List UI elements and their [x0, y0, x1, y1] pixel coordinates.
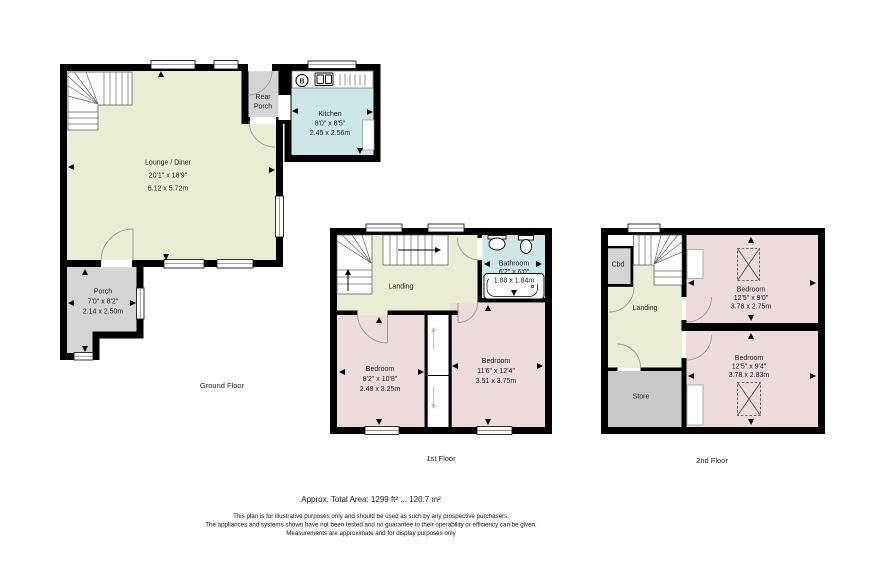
landing-label-2f: Landing: [633, 305, 658, 312]
kitchen-sink-icon: [315, 73, 333, 86]
second-floor-plan: Cbd Landing Store Bedroom 12'5" x 9'0" 3…: [605, 224, 822, 465]
floorplan-page: B: [0, 0, 886, 584]
first-floor-caption: 1st Floor: [426, 454, 456, 463]
bathroom-label: Bathroom: [499, 261, 530, 268]
bedroom-right-dims-imperial: 11'6" x 12'4": [477, 368, 515, 375]
floorplan-svg: B: [0, 0, 886, 584]
bathroom-doorway: [477, 238, 483, 260]
bedroom-front-dims-metric: 3.78 x 2.75m: [731, 304, 772, 311]
bedroom-right-label: Bedroom: [482, 358, 511, 365]
rear-porch-label-1: Rear: [255, 94, 271, 101]
ground-floor-plan: B: [64, 61, 378, 391]
porch-lounge-doorway: [101, 260, 132, 267]
bathroom-sink-icon: [488, 236, 506, 251]
bedroom-left-label: Bedroom: [366, 366, 395, 373]
lounge-dims-metric: 6.12 x 5.72m: [148, 186, 189, 193]
rearporch-lounge-doorway: [250, 117, 276, 124]
footer-text: Approx. Total Area: 1299 ft² ... 120.7 m…: [205, 495, 537, 537]
first-floor-straight-stairs: [383, 235, 448, 265]
kitchen-counter: B: [292, 71, 373, 88]
total-area-text: Approx. Total Area: 1299 ft² ... 120.7 m…: [301, 495, 441, 504]
rear-porch-label-2: Porch: [254, 104, 272, 111]
lounge-label: Lounge / Diner: [145, 160, 192, 167]
bedroom-rear-dims-imperial: 12'5" x 9'4": [732, 364, 767, 371]
rearporch-exterior-doorway: [248, 64, 272, 71]
bedroom-right-dims-metric: 3.51 x 3.75m: [476, 378, 517, 385]
rearporch-kitchen-doorway: [279, 95, 291, 120]
porch-label: Porch: [94, 289, 112, 296]
bedroom-rear-closet: [687, 385, 703, 425]
bedroom-left-dims-imperial: 8'2" x 10'8": [363, 376, 398, 383]
bedroom-left-dims-metric: 2.48 x 3.25m: [360, 386, 401, 393]
kitchen-dims-imperial: 8'0" x 8'5": [315, 121, 346, 128]
disclaimer-line-1: This plan is for illustrative purposes o…: [233, 513, 509, 520]
store-label: Store: [633, 394, 650, 401]
cupboard-top-recess: [608, 235, 633, 247]
bedroom-rear-label: Bedroom: [735, 355, 764, 362]
cupboard-label: Cbd: [612, 262, 625, 269]
boiler-label: B: [299, 78, 304, 85]
bedroom-front-dims-imperial: 12'5" x 9'0": [734, 295, 769, 302]
lounge-dims-imperial: 20'1" x 18'9": [149, 173, 188, 180]
kitchen-label: Kitchen: [318, 111, 341, 118]
first-floor-plan: Landing Bathroom 6'2" x 6'0" 1.88 x 1.84…: [334, 224, 549, 463]
bedroom-front-label: Bedroom: [737, 287, 766, 294]
kitchen-dims-metric: 2.45 x 2.56m: [310, 130, 351, 137]
bedroom-front-closet: [687, 250, 703, 279]
porch-dims-metric: 2.14 x 2.50m: [83, 309, 124, 316]
disclaimer-line-3: Measurements are approximate and for dis…: [286, 530, 456, 537]
landing-label-1f: Landing: [389, 284, 414, 291]
porch-dims-imperial: 7'0" x 8'2": [88, 299, 119, 306]
second-floor-caption: 2nd Floor: [696, 456, 728, 465]
bathroom-dims-metric: 1.88 x 1.84m: [494, 278, 535, 285]
kitchen-unit: [363, 120, 375, 150]
disclaimer-line-2: The appliances and systems shown have no…: [205, 522, 537, 529]
bathroom-dims-imperial: 6'2" x 6'0": [499, 269, 530, 276]
bedroom-rear-dims-metric: 3.78 x 2.83m: [729, 372, 770, 379]
first-floor-winder-stairs: [337, 235, 372, 294]
bedroom-rear-area: [686, 331, 818, 427]
ground-floor-caption: Ground Floor: [200, 381, 245, 390]
